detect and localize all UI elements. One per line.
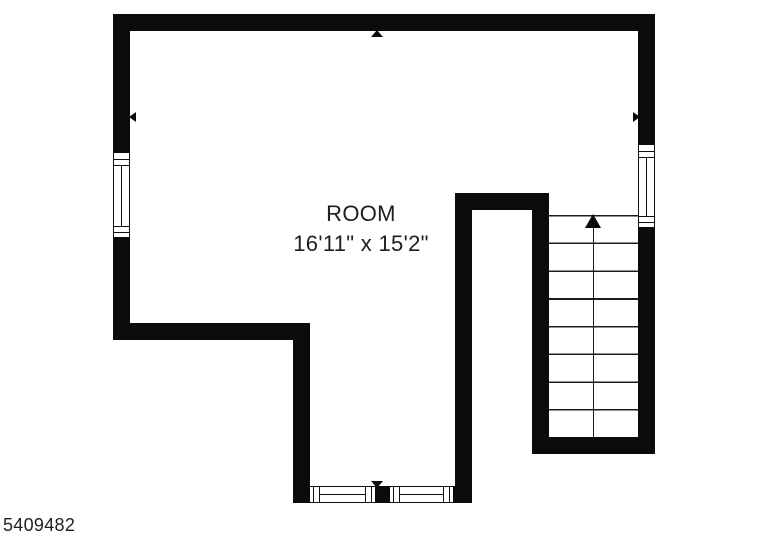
room-label: ROOM 16'11" x 15'2" bbox=[241, 199, 481, 258]
window-pane-line bbox=[121, 166, 123, 226]
wall-marker-bottom-icon bbox=[371, 481, 383, 488]
window-cap bbox=[313, 487, 320, 502]
window-cap bbox=[393, 487, 400, 502]
window-cap bbox=[443, 487, 450, 502]
wall-bottom-west bbox=[113, 323, 310, 340]
window-cap bbox=[639, 216, 654, 223]
wall-corridor-left bbox=[293, 323, 310, 503]
window-pane-line bbox=[646, 158, 648, 216]
wall-marker-left-icon bbox=[129, 112, 136, 122]
window-bottom-right bbox=[390, 486, 453, 503]
stairs-up-arrow-icon bbox=[585, 214, 601, 228]
window-bottom-left bbox=[310, 486, 375, 503]
window-right bbox=[638, 145, 655, 227]
room-name: ROOM bbox=[241, 199, 481, 229]
window-cap bbox=[365, 487, 372, 502]
wall-top bbox=[113, 14, 655, 31]
window-cap bbox=[639, 151, 654, 158]
floor-plan: ROOM 16'11" x 15'2" 5409482 bbox=[0, 0, 768, 535]
stairs-direction-line bbox=[593, 227, 595, 437]
wall-stair-bottom bbox=[532, 437, 655, 454]
wall-left-upper bbox=[113, 14, 130, 153]
window-left bbox=[113, 153, 130, 237]
window-pane-line bbox=[320, 494, 365, 496]
window-pane-line bbox=[400, 494, 443, 496]
wall-marker-top-icon bbox=[371, 30, 383, 37]
window-cap bbox=[114, 159, 129, 166]
wall-right-upper bbox=[638, 14, 655, 145]
wall-right-lower bbox=[638, 227, 655, 454]
staircase bbox=[549, 215, 638, 437]
window-cap bbox=[114, 226, 129, 233]
wall-stair-left bbox=[532, 193, 549, 454]
listing-id: 5409482 bbox=[3, 515, 75, 536]
wall-marker-right-icon bbox=[633, 112, 640, 122]
room-dimensions: 16'11" x 15'2" bbox=[241, 229, 481, 259]
